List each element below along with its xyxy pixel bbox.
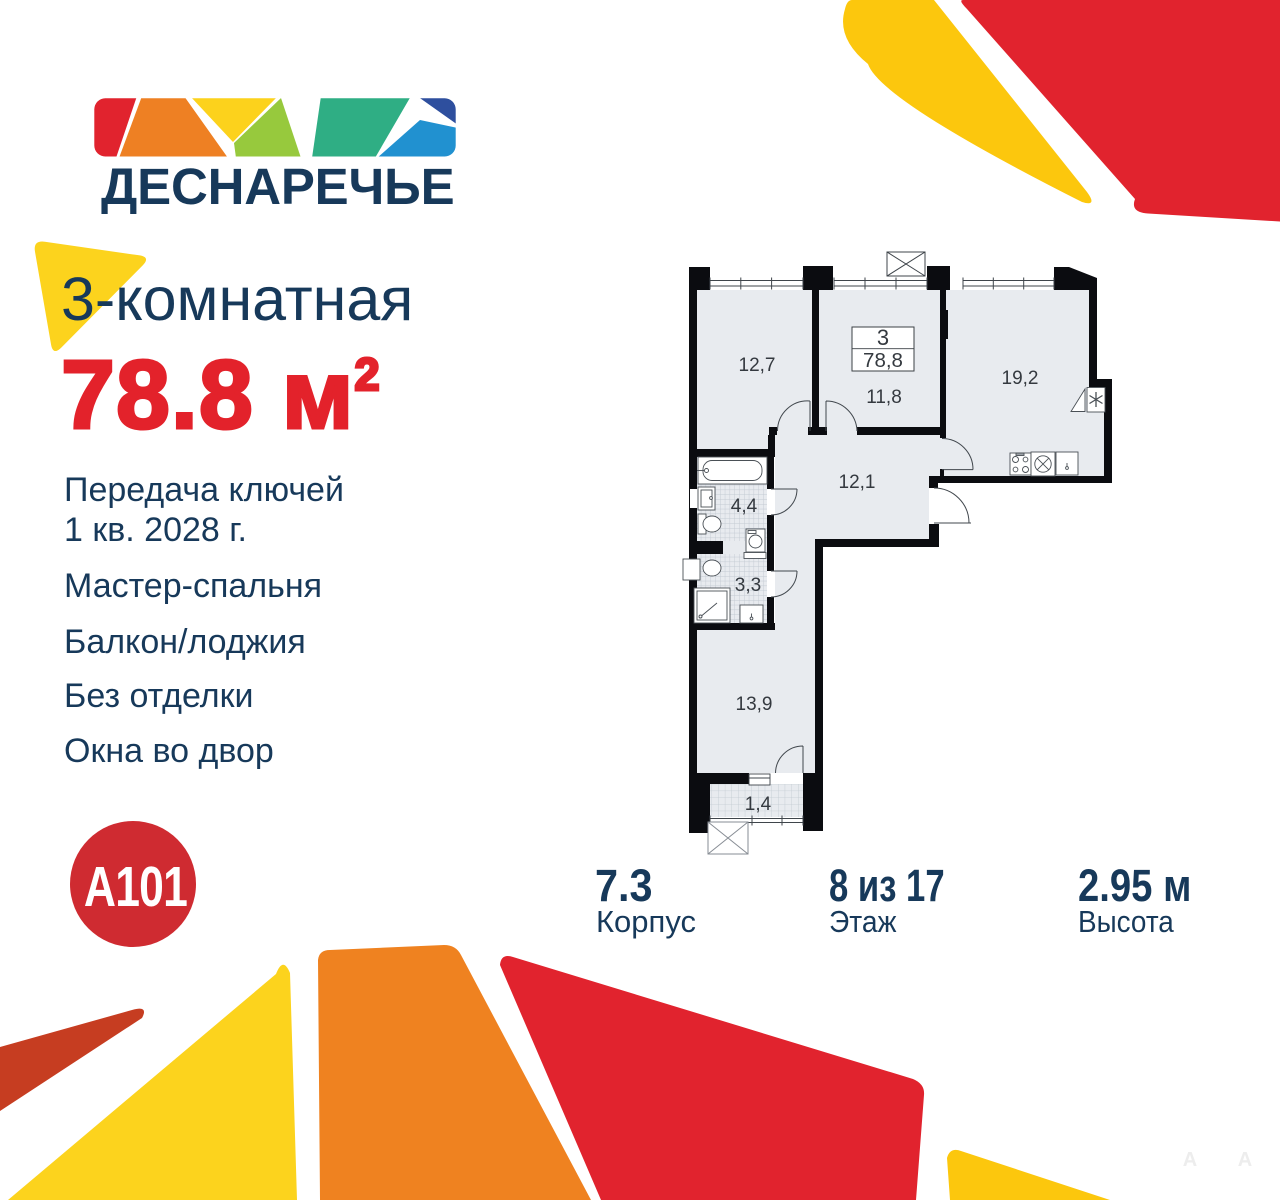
- svg-text:А: А: [1183, 1149, 1197, 1171]
- svg-text:78,8: 78,8: [863, 349, 903, 372]
- svg-text:А: А: [1238, 1149, 1252, 1171]
- svg-text:11,8: 11,8: [866, 387, 902, 408]
- svg-text:13,9: 13,9: [736, 694, 773, 715]
- svg-text:3,3: 3,3: [735, 575, 761, 596]
- svg-text:12,1: 12,1: [839, 472, 876, 493]
- svg-text:1,4: 1,4: [745, 794, 772, 815]
- svg-text:3: 3: [877, 325, 889, 350]
- svg-text:12,7: 12,7: [739, 355, 776, 376]
- svg-text:4,4: 4,4: [731, 496, 758, 517]
- svg-text:19,2: 19,2: [1002, 368, 1039, 389]
